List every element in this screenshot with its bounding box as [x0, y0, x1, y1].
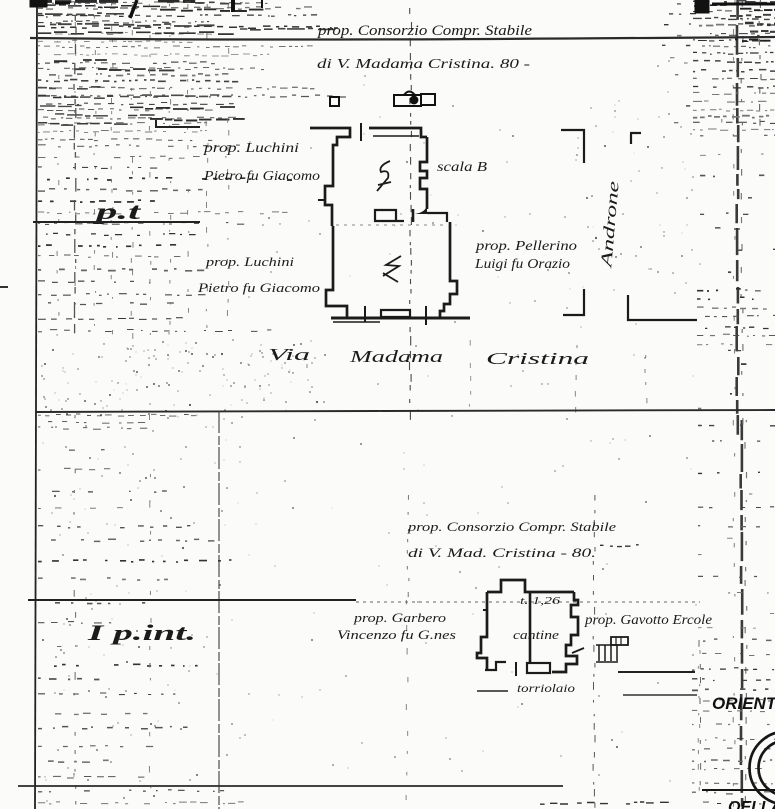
svg-text:prop. Gavotto Ercole: prop. Gavotto Ercole — [584, 612, 712, 627]
svg-text:Androne: Androne — [598, 180, 623, 269]
svg-text:t. 1,26: t. 1,26 — [520, 595, 561, 607]
svg-text:prop. Consorzio Compr. Stabile: prop. Consorzio Compr. Stabile — [407, 519, 617, 534]
svg-text:prop. Luchini: prop. Luchini — [205, 254, 295, 269]
svg-text:prop. Luchini: prop. Luchini — [203, 140, 300, 155]
svg-text:I p.int.: I p.int. — [86, 620, 196, 645]
svg-text:Via: Via — [268, 345, 310, 364]
svg-text:Cristina: Cristina — [486, 349, 589, 368]
svg-text:di V. Mad. Cristina - 80.: di V. Mad. Cristina - 80. — [408, 545, 596, 560]
svg-text:di V. Madama Cristina. 80 -: di V. Madama Cristina. 80 - — [317, 57, 530, 72]
svg-text:Madama: Madama — [348, 347, 443, 366]
svg-text:Pietro fu Giacomo: Pietro fu Giacomo — [197, 280, 321, 295]
svg-text:prop. Garbero: prop. Garbero — [353, 610, 447, 625]
svg-text:Vincenzo fu G.nes: Vincenzo fu G.nes — [337, 627, 456, 642]
svg-text:ORIENT.: ORIENT. — [712, 694, 775, 713]
svg-text:Luigi fu Orazio: Luigi fu Orazio — [474, 256, 570, 271]
svg-text:torriolaio: torriolaio — [517, 681, 575, 695]
svg-text:p.t: p.t — [92, 199, 141, 224]
svg-text:cantine: cantine — [513, 627, 559, 642]
svg-text:Pietro fu Giacomo: Pietro fu Giacomo — [203, 168, 320, 183]
svg-text:OELLA: OELLA — [728, 799, 775, 809]
svg-text:prop. Pellerino: prop. Pellerino — [475, 238, 578, 253]
svg-text:scala B: scala B — [437, 159, 487, 174]
svg-text:prop. Consorzio Compr. Stabile: prop. Consorzio Compr. Stabile — [317, 23, 533, 39]
